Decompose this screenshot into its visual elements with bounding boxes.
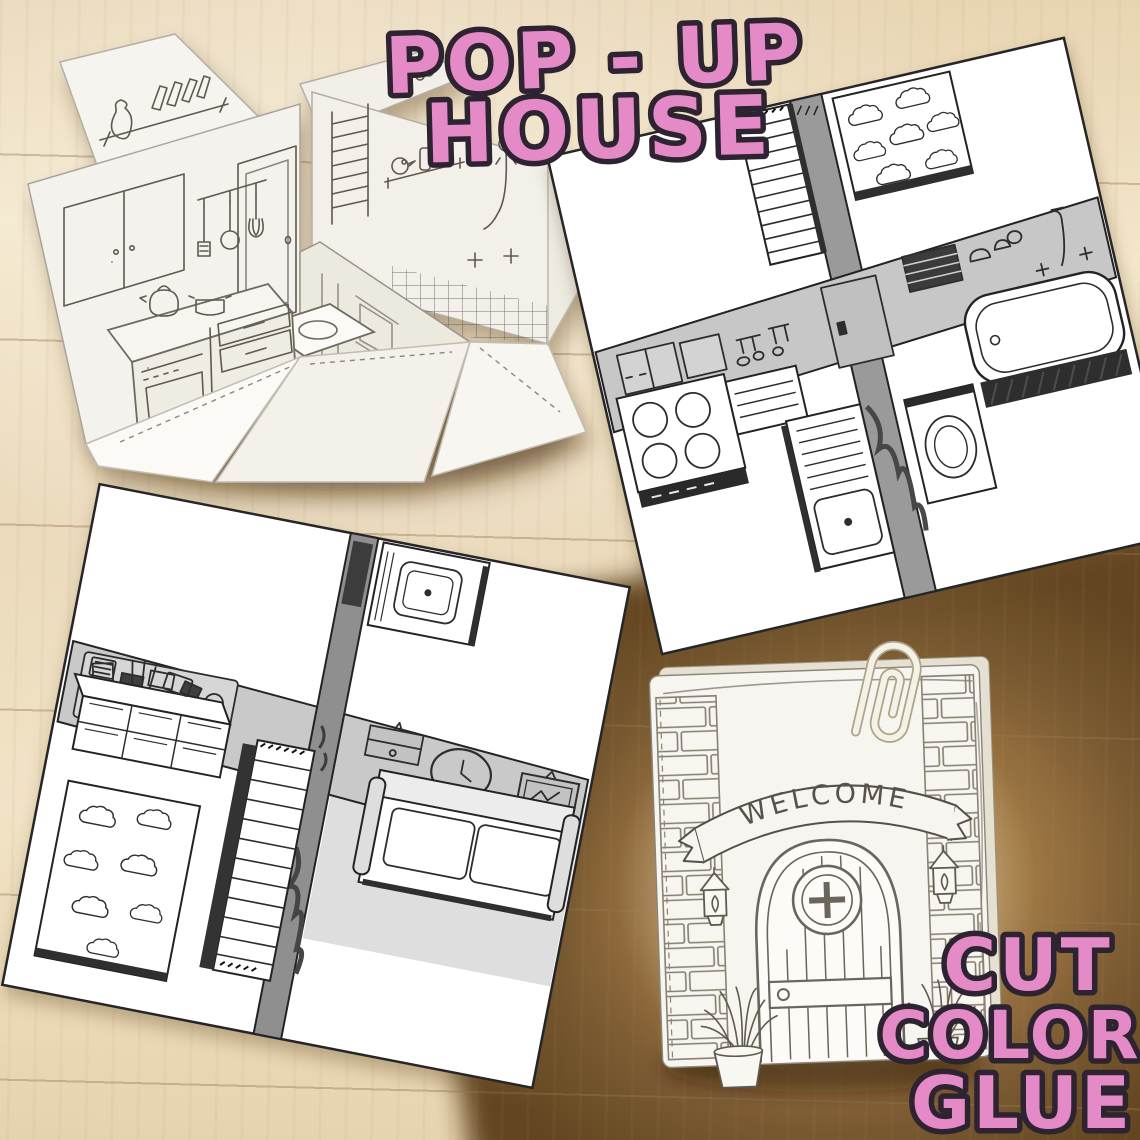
pop-up-house-product-collage: WELCOME — [0, 0, 1140, 1140]
overlay-glue: GLUE — [911, 1061, 1133, 1140]
overlay-cut: CUT — [943, 923, 1112, 1007]
text-overlay: POP - UP HOUSE CUT COLOR GLUE — [0, 0, 1140, 1140]
title-line-2: HOUSE — [424, 78, 776, 182]
